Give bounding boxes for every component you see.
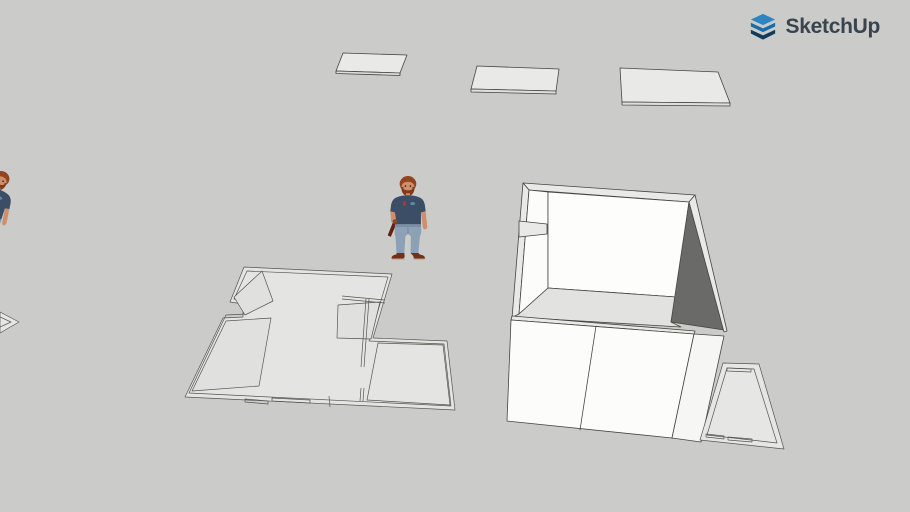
flat-panel-1[interactable] bbox=[336, 53, 407, 76]
flat-panel-2-top bbox=[471, 66, 559, 91]
room-front-wall-outer-face bbox=[507, 320, 694, 438]
sketchup-3d-viewport[interactable]: SketchUp bbox=[0, 0, 910, 512]
scale-figure-center[interactable] bbox=[388, 176, 428, 260]
sketchup-logo-icon bbox=[748, 13, 778, 41]
plan-room-left bbox=[192, 318, 271, 391]
room-doorway-return bbox=[519, 221, 547, 237]
flat-panel-3-top bbox=[620, 68, 730, 103]
sketchup-logo-text: SketchUp bbox=[786, 15, 880, 39]
flat-panel-left-edge-corner[interactable] bbox=[0, 312, 19, 333]
sketchup-logo[interactable]: SketchUp bbox=[748, 13, 880, 41]
scene-canvas[interactable] bbox=[0, 0, 910, 512]
floor-plan-flat[interactable] bbox=[185, 267, 455, 410]
room-back-wall-inner-face bbox=[548, 192, 689, 297]
flat-panel-1-top bbox=[336, 53, 407, 73]
flat-panel-3-edge bbox=[622, 102, 730, 106]
logo-cube-top bbox=[750, 14, 774, 25]
room-3d-walls[interactable] bbox=[507, 183, 727, 442]
flat-panel-3[interactable] bbox=[620, 68, 730, 106]
scale-figure-left[interactable] bbox=[0, 165, 21, 253]
flat-panel-2[interactable] bbox=[471, 66, 559, 94]
